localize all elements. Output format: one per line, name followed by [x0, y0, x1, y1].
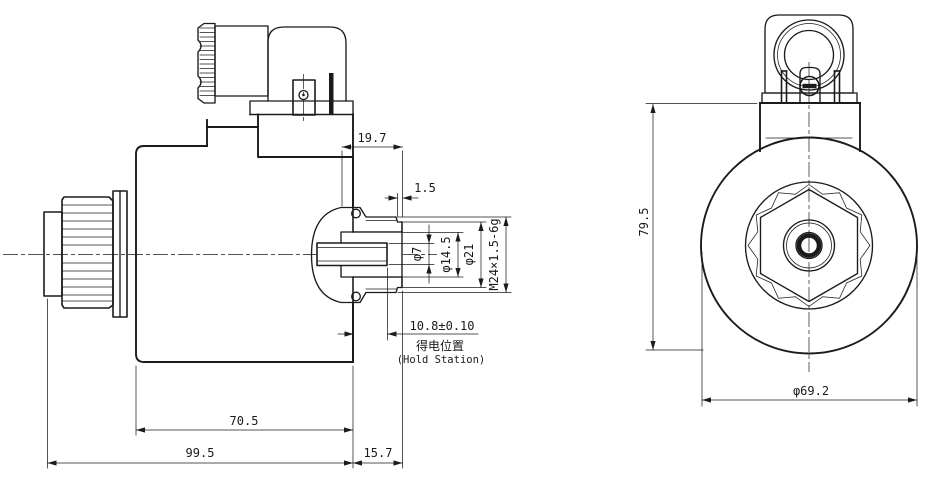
terminal-pin — [329, 73, 334, 115]
dim-label-hold-pos: 10.8±0.10 — [409, 319, 474, 333]
gland-knurl-lines — [200, 28, 215, 96]
label-hold-station-en: (Hold Station) — [397, 354, 486, 366]
side-view: 19.7 1.5 φ7 φ14.5 — [3, 24, 511, 469]
label-hold-station-cn: 得电位置 — [416, 338, 464, 353]
dim-label-70-5: 70.5 — [230, 414, 259, 428]
dim-label-99-5: 99.5 — [186, 446, 215, 460]
dim-label-bore-dia: φ14.5 — [439, 236, 453, 272]
flange-washer — [113, 191, 127, 317]
solenoid-drawing: 19.7 1.5 φ7 φ14.5 — [0, 0, 934, 478]
dim-label-1-5: 1.5 — [414, 181, 436, 195]
front-view-dimensions: 79.5 φ69.2 — [637, 104, 917, 407]
dim-label-15-7: 15.7 — [364, 446, 393, 460]
dim-label-69-2: φ69.2 — [793, 384, 829, 398]
cable-gland-nut — [198, 24, 215, 104]
manual-override-knob — [62, 197, 113, 308]
screw-slot — [803, 84, 817, 88]
connector-base-plate — [250, 101, 353, 115]
coil-body — [136, 115, 353, 363]
armature-pin — [317, 243, 387, 266]
armature-tube-section — [312, 115, 403, 363]
side-view-dimensions: 19.7 1.5 φ7 φ14.5 — [48, 131, 512, 468]
dim-label-79-5: 79.5 — [637, 208, 651, 237]
dim-label-neck-dia: φ21 — [462, 244, 476, 266]
base-plate-front — [762, 93, 857, 103]
knurl-lines — [63, 205, 113, 301]
din-connector-housing — [268, 27, 346, 101]
dim-label-pin-dia: φ7 — [410, 247, 424, 261]
technical-drawing-canvas: 19.7 1.5 φ7 φ14.5 — [0, 0, 934, 478]
dim-label-19-7: 19.7 — [358, 131, 387, 145]
dim-label-thread-spec: M24×1.5-6g — [487, 218, 501, 290]
manual-override-cap — [44, 212, 62, 296]
front-view: 79.5 φ69.2 — [637, 15, 917, 406]
gland-neck — [215, 26, 268, 96]
